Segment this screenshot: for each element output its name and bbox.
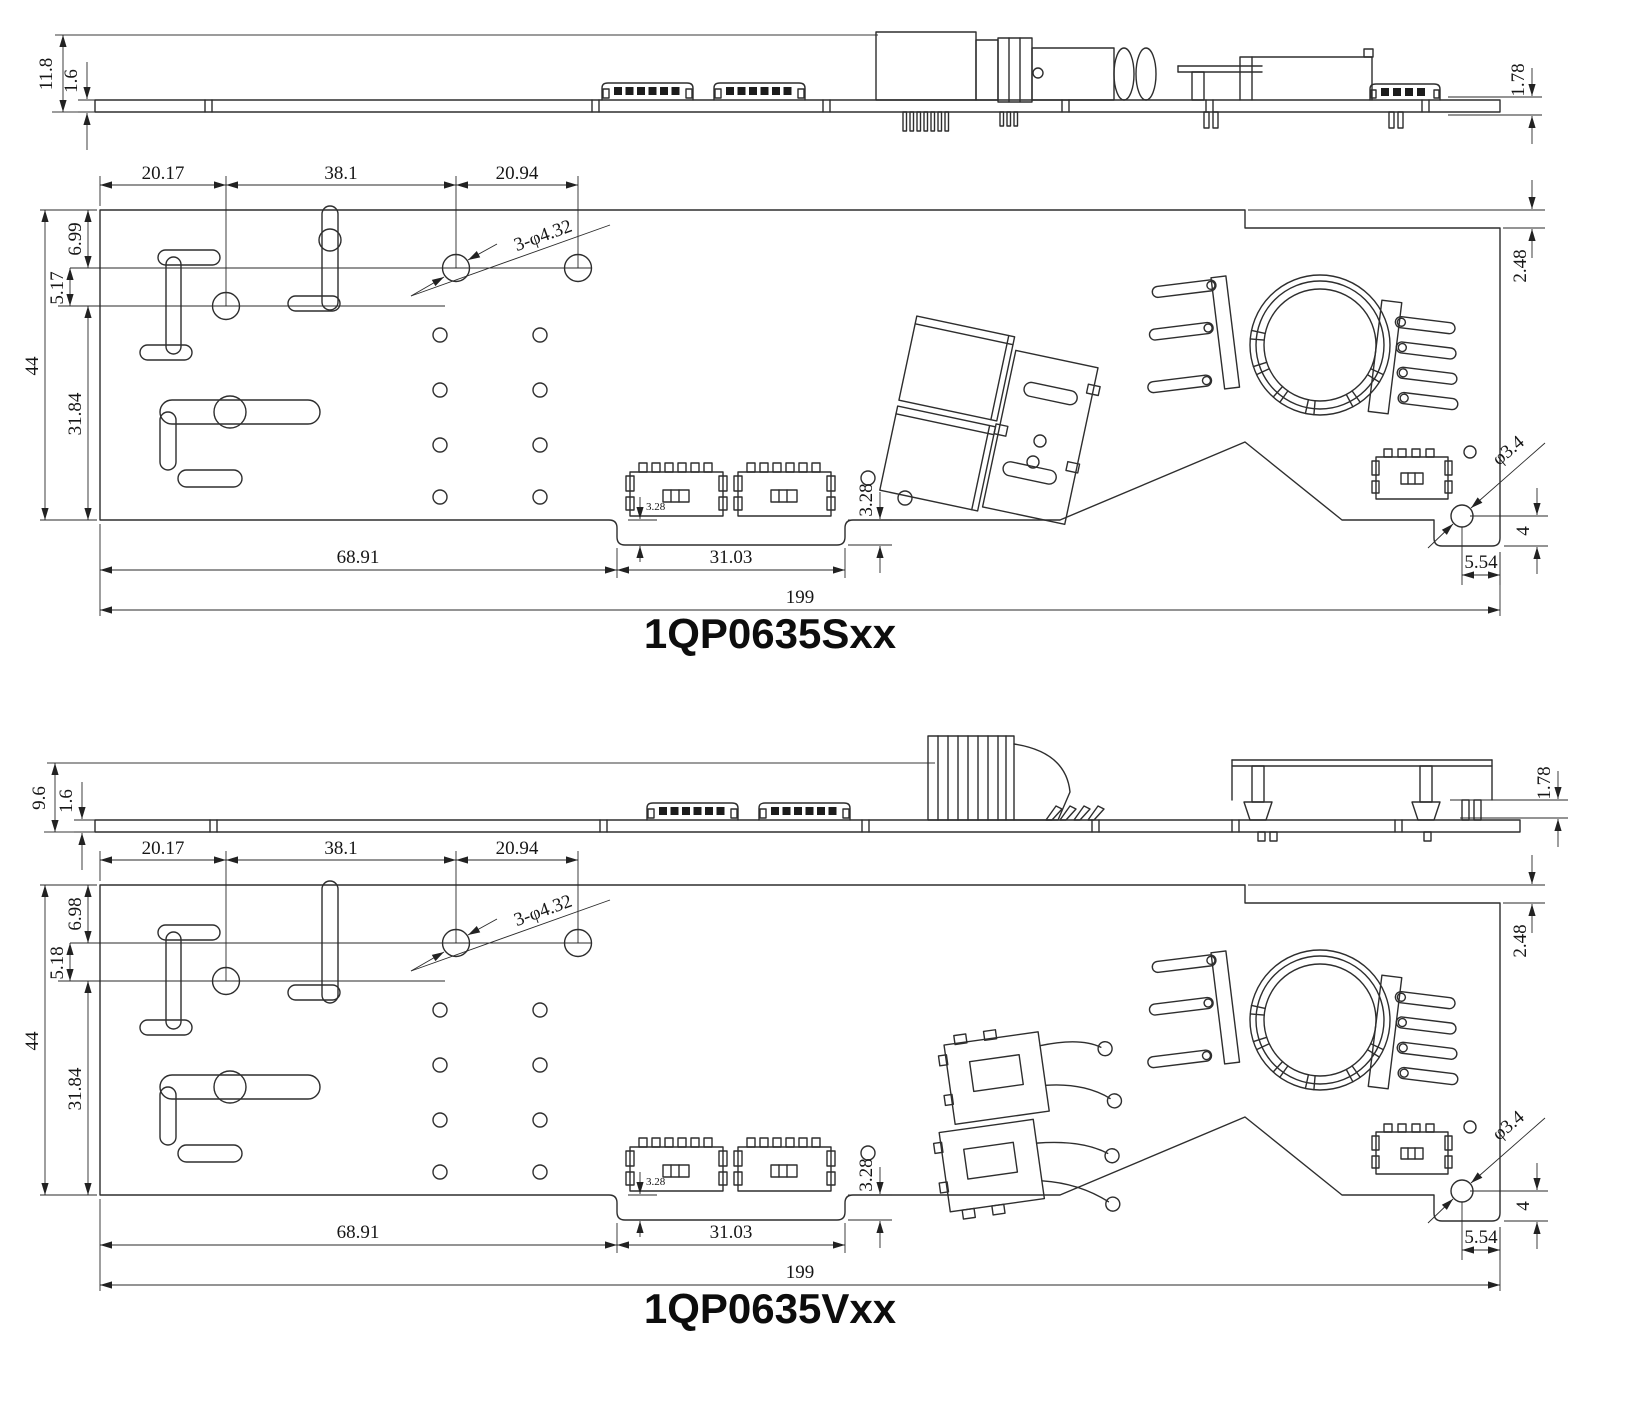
right-module-side — [1178, 49, 1440, 128]
ffc-connector-side — [759, 803, 850, 820]
ffc-connector-side — [602, 83, 693, 100]
ffc-connector-side — [714, 83, 805, 100]
dim-conn-inset: 3.28 — [646, 501, 666, 513]
curved-pin-connector — [919, 1014, 1136, 1235]
dim-corner-left: 5.54 — [1464, 552, 1498, 573]
dim-w2: 38.1 — [324, 838, 357, 859]
right-module-side — [1232, 760, 1492, 841]
dim-w2: 38.1 — [324, 163, 357, 184]
dim-span-left: 68.91 — [337, 547, 380, 568]
dim-height: 44 — [22, 356, 43, 376]
dim-right-step: 2.48 — [1510, 924, 1531, 957]
dim-tab-width: 31.03 — [710, 1222, 753, 1243]
dim-corner-hole: φ3.4 — [1488, 1106, 1528, 1145]
dim-left1: 6.99 — [65, 222, 86, 255]
dim-corner-left: 5.54 — [1464, 1227, 1498, 1248]
top-dim-labels: 20.17 38.1 20.94 6.99 5.17 44 31.84 3-φ4… — [22, 163, 1534, 608]
variant-title-v: 1QP0635Vxx — [644, 1285, 897, 1332]
top-edge-slot — [288, 206, 341, 311]
dim-right-clearance: 1.78 — [1508, 63, 1529, 96]
top-edge-slot — [288, 881, 340, 1003]
view-v-side: 9.6 1.6 1.78 — [29, 736, 1568, 870]
dim-left3: 31.84 — [65, 392, 86, 435]
dim-conn-inset: 3.28 — [646, 1176, 666, 1188]
dim-w3: 20.94 — [496, 163, 539, 184]
dim-height: 44 — [22, 1031, 43, 1051]
dim-span-left: 68.91 — [337, 1222, 380, 1243]
dim-w1: 20.17 — [142, 163, 185, 184]
board-segment-ticks — [205, 100, 1429, 112]
dim-total: 199 — [786, 1262, 815, 1283]
side-dims — [55, 763, 1568, 870]
bnc-connector-side — [876, 32, 1156, 131]
dim-tab-step: 3.28 — [856, 483, 877, 516]
side-dims — [63, 35, 1542, 150]
view-s-top: 20.17 38.1 20.94 6.99 5.17 44 31.84 3-φ4… — [22, 163, 1548, 657]
dim-w3: 20.94 — [496, 838, 539, 859]
dim-w1: 20.17 — [142, 838, 185, 859]
vertical-bnc-side — [928, 736, 1104, 820]
dim-total: 199 — [786, 587, 815, 608]
tilted-dual-component — [880, 316, 1107, 530]
dim-left1: 6.98 — [65, 897, 86, 930]
dim-holes-note: 3-φ4.32 — [511, 891, 575, 931]
dim-right-clearance: 1.78 — [1534, 766, 1555, 799]
dim-tab-width: 31.03 — [710, 547, 753, 568]
top-dim-labels: 20.17 38.1 20.94 6.98 5.18 44 31.84 3-φ4… — [22, 838, 1534, 1283]
view-v-top: 20.17 38.1 20.94 6.98 5.18 44 31.84 3-φ4… — [22, 838, 1548, 1332]
dim-holes-note: 3-φ4.32 — [511, 216, 575, 256]
dim-left2: 5.17 — [47, 271, 68, 304]
ffc-connector-side — [647, 803, 738, 820]
dim-overall-height: 9.6 — [29, 786, 50, 810]
variant-title-s: 1QP0635Sxx — [644, 610, 897, 657]
mechanical-drawing-page: 11.8 1.6 1.78 — [0, 0, 1646, 1419]
dim-left2: 5.18 — [47, 946, 68, 979]
dim-left3: 31.84 — [65, 1067, 86, 1110]
dim-board-thickness: 1.6 — [61, 69, 82, 93]
dim-overall-height: 11.8 — [36, 58, 57, 91]
board-segment-ticks — [210, 820, 1402, 832]
dim-board-thickness: 1.6 — [56, 789, 77, 813]
view-s-side: 11.8 1.6 1.78 — [36, 32, 1542, 150]
dim-corner-up: 4 — [1513, 1201, 1534, 1211]
dim-corner-hole: φ3.4 — [1488, 431, 1528, 470]
pcb-dimension-drawing: 11.8 1.6 1.78 — [0, 0, 1646, 1419]
dim-right-step: 2.48 — [1510, 249, 1531, 282]
dim-corner-up: 4 — [1513, 526, 1534, 536]
dim-tab-step: 3.28 — [856, 1158, 877, 1191]
